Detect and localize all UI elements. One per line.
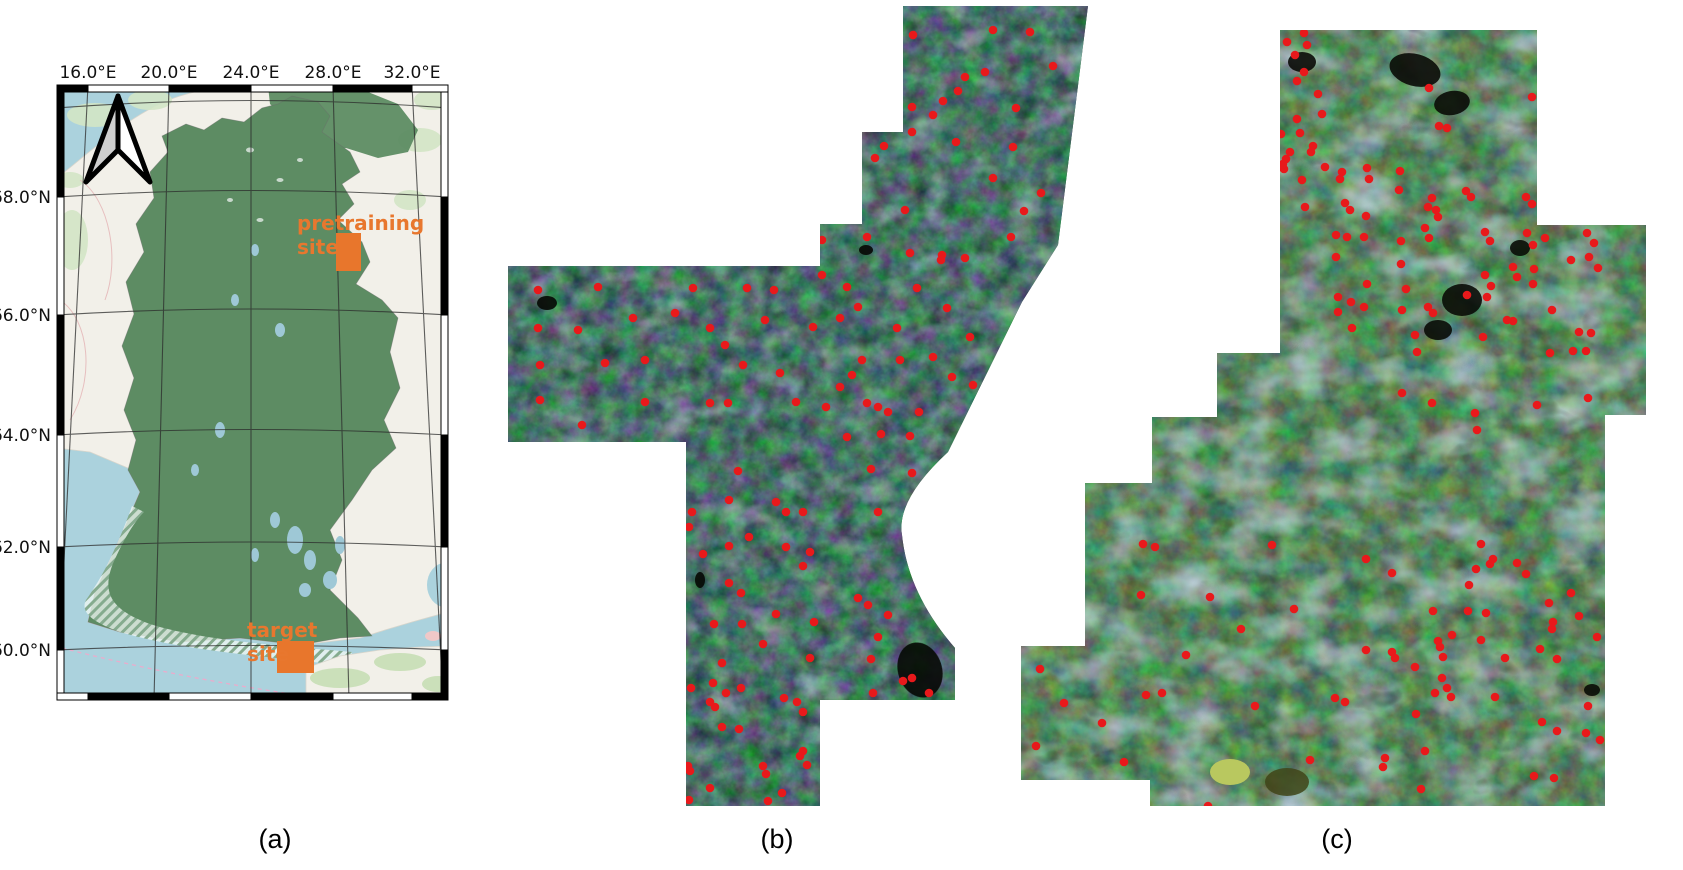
sample-point bbox=[1487, 282, 1496, 291]
sample-point bbox=[867, 465, 876, 474]
sample-point bbox=[1513, 273, 1522, 282]
sample-point bbox=[1596, 736, 1605, 745]
sample-point bbox=[1268, 541, 1277, 550]
sample-point bbox=[1300, 68, 1309, 77]
sample-point bbox=[1421, 747, 1430, 756]
sample-point bbox=[1411, 331, 1420, 340]
sample-point bbox=[966, 333, 975, 342]
sample-point bbox=[1396, 167, 1405, 176]
sample-point bbox=[1395, 186, 1404, 195]
sample-point bbox=[778, 789, 787, 798]
sample-point bbox=[759, 762, 768, 771]
pretraining-site-label-line2: site bbox=[297, 235, 339, 259]
sample-point bbox=[1491, 693, 1500, 702]
sample-point bbox=[1338, 168, 1347, 177]
sample-point bbox=[1120, 758, 1129, 767]
sample-point bbox=[908, 128, 917, 137]
sample-point bbox=[718, 723, 727, 732]
sample-point bbox=[1523, 229, 1532, 238]
latitude-axis: 68.0°N 66.0°N 64.0°N 62.0°N 60.0°N bbox=[0, 188, 51, 661]
sample-point bbox=[899, 677, 908, 686]
sample-point bbox=[848, 371, 857, 380]
sample-point bbox=[818, 271, 827, 280]
sample-point bbox=[969, 381, 978, 390]
sample-point bbox=[1365, 175, 1374, 184]
city-area bbox=[425, 631, 441, 641]
lat-tick-label: 68.0°N bbox=[0, 188, 51, 208]
sample-point bbox=[1553, 655, 1562, 664]
lat-tick-label: 62.0°N bbox=[0, 538, 51, 558]
sample-point bbox=[739, 361, 748, 370]
sample-point bbox=[954, 87, 963, 96]
sample-point bbox=[1464, 607, 1473, 616]
sample-point bbox=[1481, 271, 1490, 280]
sample-point bbox=[908, 674, 917, 683]
sample-point bbox=[1293, 77, 1302, 86]
sample-point bbox=[1331, 694, 1340, 703]
sample-point bbox=[594, 283, 603, 292]
sample-point bbox=[961, 254, 970, 263]
sample-point bbox=[806, 548, 815, 557]
sample-point bbox=[721, 341, 730, 350]
sample-point bbox=[770, 286, 779, 295]
sample-point bbox=[1036, 665, 1045, 674]
sample-point bbox=[534, 286, 543, 295]
sample-point bbox=[1447, 693, 1456, 702]
sample-point bbox=[1291, 51, 1300, 60]
sample-point bbox=[1583, 229, 1592, 238]
sample-point bbox=[1379, 763, 1388, 772]
sample-point bbox=[641, 356, 650, 365]
sample-point bbox=[724, 399, 733, 408]
sample-point bbox=[843, 433, 852, 442]
sample-point bbox=[629, 314, 638, 323]
olive-lake bbox=[1265, 768, 1309, 796]
sample-point bbox=[1362, 555, 1371, 564]
sample-point bbox=[1549, 618, 1558, 627]
sample-point bbox=[874, 403, 883, 412]
sample-point bbox=[709, 679, 718, 688]
sample-point bbox=[1584, 394, 1593, 403]
sample-point bbox=[863, 233, 872, 242]
sample-point bbox=[699, 550, 708, 559]
sample-point bbox=[1139, 540, 1148, 549]
sample-point bbox=[1348, 324, 1357, 333]
sample-point bbox=[810, 618, 819, 627]
sample-point bbox=[1436, 643, 1445, 652]
sample-point bbox=[737, 684, 746, 693]
sample-point bbox=[948, 373, 957, 382]
sample-point bbox=[1391, 654, 1400, 663]
sample-point bbox=[1483, 293, 1492, 302]
sample-point bbox=[1472, 565, 1481, 574]
sample-point bbox=[1443, 684, 1452, 693]
sample-point bbox=[725, 542, 734, 551]
sample-point bbox=[937, 256, 946, 265]
sample-point bbox=[867, 655, 876, 664]
sample-point bbox=[536, 396, 545, 405]
sample-point bbox=[722, 689, 731, 698]
sample-point bbox=[1594, 264, 1603, 273]
sample-point bbox=[1182, 651, 1191, 660]
sample-point bbox=[1334, 308, 1343, 317]
sample-point bbox=[1477, 540, 1486, 549]
sample-point bbox=[1301, 203, 1310, 212]
sample-point bbox=[1536, 645, 1545, 654]
sample-point bbox=[761, 316, 770, 325]
sample-point bbox=[1421, 224, 1430, 233]
sample-point bbox=[687, 684, 696, 693]
sample-point bbox=[929, 353, 938, 362]
sample-point bbox=[685, 796, 694, 805]
sample-point bbox=[1529, 241, 1538, 250]
sample-point bbox=[735, 725, 744, 734]
sample-point bbox=[1049, 62, 1058, 71]
map-content: pretraining site target site bbox=[56, 85, 463, 700]
sample-point bbox=[1290, 605, 1299, 614]
sample-point bbox=[915, 408, 924, 417]
sample-point bbox=[1567, 589, 1576, 598]
sample-point bbox=[1300, 29, 1309, 38]
sample-point bbox=[1528, 200, 1537, 209]
sample-point bbox=[1545, 599, 1554, 608]
sample-point bbox=[858, 356, 867, 365]
sample-point bbox=[578, 421, 587, 430]
sample-point bbox=[1429, 607, 1438, 616]
sample-point bbox=[1546, 349, 1555, 358]
sample-point bbox=[803, 761, 812, 770]
lon-tick-label: 24.0°E bbox=[222, 63, 279, 83]
sample-point bbox=[854, 594, 863, 603]
sample-point bbox=[1398, 306, 1407, 315]
sample-point bbox=[686, 767, 695, 776]
sample-point bbox=[772, 498, 781, 507]
sample-point bbox=[782, 543, 791, 552]
sample-point bbox=[1417, 785, 1426, 794]
sample-point bbox=[1575, 328, 1584, 337]
sample-point bbox=[706, 399, 715, 408]
sample-point bbox=[806, 654, 815, 663]
sample-point bbox=[1142, 691, 1151, 700]
sample-point bbox=[896, 356, 905, 365]
sample-point bbox=[780, 694, 789, 703]
sample-point bbox=[1411, 663, 1420, 672]
sample-point bbox=[822, 403, 831, 412]
sample-point bbox=[1425, 84, 1434, 93]
sample-point bbox=[1465, 581, 1474, 590]
sample-point bbox=[1309, 142, 1318, 151]
sample-point bbox=[1486, 560, 1495, 569]
sample-point bbox=[1428, 399, 1437, 408]
sample-point bbox=[1321, 163, 1330, 172]
sample-point bbox=[1360, 233, 1369, 242]
sample-point bbox=[1381, 754, 1390, 763]
sample-point bbox=[1306, 756, 1315, 765]
sample-point bbox=[1473, 426, 1482, 435]
sample-point bbox=[1397, 237, 1406, 246]
sample-point bbox=[1346, 206, 1355, 215]
sample-point bbox=[989, 174, 998, 183]
sample-point bbox=[1479, 333, 1488, 342]
sample-point bbox=[1550, 774, 1559, 783]
sample-point bbox=[1402, 285, 1411, 294]
sample-point bbox=[1448, 631, 1457, 640]
sample-point bbox=[799, 708, 808, 717]
sample-point bbox=[1584, 702, 1593, 711]
sample-point bbox=[1412, 710, 1421, 719]
lat-tick-label: 66.0°N bbox=[0, 306, 51, 326]
sample-point bbox=[908, 103, 917, 112]
sample-point bbox=[1424, 203, 1433, 212]
lat-tick-label: 60.0°N bbox=[0, 641, 51, 661]
sample-point bbox=[793, 698, 802, 707]
sample-point bbox=[1439, 653, 1448, 662]
sample-point bbox=[1363, 280, 1372, 289]
sample-point bbox=[1428, 194, 1437, 203]
sample-point bbox=[743, 284, 752, 293]
sample-point bbox=[1347, 298, 1356, 307]
sample-point bbox=[1397, 260, 1406, 269]
sample-point bbox=[1509, 263, 1518, 272]
sample-point bbox=[1279, 160, 1288, 169]
sample-point bbox=[1486, 237, 1495, 246]
sample-point bbox=[764, 797, 773, 806]
sample-point bbox=[1277, 130, 1286, 139]
sample-point bbox=[688, 508, 697, 517]
pretraining-site-rect bbox=[336, 233, 361, 271]
sample-point bbox=[884, 611, 893, 620]
sample-point bbox=[1513, 559, 1522, 568]
sample-point bbox=[725, 579, 734, 588]
sample-point bbox=[925, 689, 934, 698]
sample-point bbox=[792, 398, 801, 407]
sample-point bbox=[1593, 633, 1602, 642]
sample-point bbox=[799, 562, 808, 571]
sample-point bbox=[1032, 742, 1041, 751]
study-area-figure: pretraining site target site bbox=[0, 0, 1683, 870]
sample-point bbox=[1251, 702, 1260, 711]
sample-point bbox=[1431, 689, 1440, 698]
sample-point bbox=[880, 142, 889, 151]
sample-point bbox=[1463, 291, 1472, 300]
sample-point bbox=[1538, 718, 1547, 727]
lon-tick-label: 20.0°E bbox=[140, 63, 197, 83]
sample-point bbox=[536, 361, 545, 370]
sample-point bbox=[782, 508, 791, 517]
sample-point bbox=[1528, 93, 1537, 102]
caption-b: (b) bbox=[761, 824, 794, 855]
sample-point bbox=[1590, 239, 1599, 248]
sample-point bbox=[796, 752, 805, 761]
sample-point bbox=[734, 467, 743, 476]
sample-point bbox=[574, 326, 583, 335]
sample-point bbox=[1158, 689, 1167, 698]
sample-point bbox=[874, 633, 883, 642]
sample-point bbox=[534, 324, 543, 333]
sample-point bbox=[1438, 674, 1447, 683]
sample-point bbox=[1362, 212, 1371, 221]
panel-c-satellite-mosaic bbox=[1015, 25, 1655, 815]
sample-point bbox=[745, 533, 754, 542]
sample-point bbox=[893, 324, 902, 333]
sample-point bbox=[671, 309, 680, 318]
lon-tick-label: 28.0°E bbox=[304, 63, 361, 83]
panel-b-satellite-mosaic bbox=[470, 0, 1110, 815]
sample-point bbox=[1533, 401, 1542, 410]
sample-point bbox=[1429, 309, 1438, 318]
sample-point bbox=[1585, 253, 1594, 262]
sample-point bbox=[1582, 729, 1591, 738]
figure-canvas: pretraining site target site bbox=[0, 0, 1683, 870]
sample-point bbox=[1137, 591, 1146, 600]
sample-point bbox=[1341, 199, 1350, 208]
sample-point bbox=[884, 408, 893, 417]
sample-point bbox=[864, 601, 873, 610]
sample-point bbox=[1425, 234, 1434, 243]
sample-point bbox=[718, 659, 727, 668]
sample-point bbox=[1026, 28, 1035, 37]
lon-tick-label: 32.0°E bbox=[383, 63, 440, 83]
sample-point bbox=[1343, 233, 1352, 242]
sample-point bbox=[1477, 636, 1486, 645]
sample-point bbox=[906, 249, 915, 258]
sample-point bbox=[877, 430, 886, 439]
sample-point bbox=[863, 399, 872, 408]
sample-point bbox=[1151, 543, 1160, 552]
sample-point bbox=[1398, 389, 1407, 398]
pale-green-lake bbox=[1210, 759, 1250, 785]
sample-point bbox=[1007, 233, 1016, 242]
sample-point bbox=[1360, 303, 1369, 312]
sample-point bbox=[1098, 719, 1107, 728]
sample-point bbox=[1318, 110, 1327, 119]
lon-tick-label: 16.0°E bbox=[59, 63, 116, 83]
sample-point bbox=[1341, 698, 1350, 707]
sample-point bbox=[1037, 189, 1046, 198]
sample-point bbox=[1569, 347, 1578, 356]
sample-point bbox=[1206, 593, 1215, 602]
sample-point bbox=[908, 469, 917, 478]
sample-point bbox=[818, 236, 827, 245]
longitude-axis: 16.0°E 20.0°E 24.0°E 28.0°E 32.0°E bbox=[59, 63, 440, 83]
sample-point bbox=[1567, 256, 1576, 265]
sample-point bbox=[1298, 176, 1307, 185]
sample-point bbox=[706, 324, 715, 333]
sample-point bbox=[1204, 802, 1213, 811]
sample-point bbox=[939, 97, 948, 106]
sample-point bbox=[710, 620, 719, 629]
sample-point bbox=[1575, 612, 1584, 621]
sample-point bbox=[1363, 164, 1372, 173]
sample-point bbox=[762, 770, 771, 779]
sample-point bbox=[706, 784, 715, 793]
sample-point bbox=[809, 323, 818, 332]
sample-point bbox=[1362, 646, 1371, 655]
sample-point bbox=[737, 589, 746, 598]
sample-point bbox=[1009, 143, 1018, 152]
sample-point bbox=[1060, 699, 1069, 708]
sample-point bbox=[961, 73, 970, 82]
sample-point bbox=[1548, 306, 1557, 315]
sample-point bbox=[1529, 280, 1538, 289]
pretraining-site-label-line1: pretraining bbox=[297, 211, 424, 235]
sample-point bbox=[689, 284, 698, 293]
sample-point bbox=[1482, 609, 1491, 618]
sample-point bbox=[943, 304, 952, 313]
target-site-label-line2: site bbox=[247, 642, 289, 666]
sample-point bbox=[1332, 231, 1341, 240]
sample-point bbox=[1432, 206, 1441, 215]
sample-point bbox=[871, 154, 880, 163]
sample-point bbox=[1541, 234, 1550, 243]
sample-point bbox=[685, 523, 694, 532]
sample-point bbox=[854, 303, 863, 312]
sample-point bbox=[776, 369, 785, 378]
sample-point bbox=[1481, 228, 1490, 237]
sample-point bbox=[1413, 348, 1422, 357]
sample-point bbox=[929, 111, 938, 120]
sample-point bbox=[1435, 122, 1444, 131]
sample-point bbox=[1303, 41, 1312, 50]
sample-point bbox=[725, 496, 734, 505]
sample-point bbox=[952, 138, 961, 147]
sample-point bbox=[1530, 772, 1539, 781]
sample-point bbox=[1293, 115, 1302, 124]
sample-point bbox=[1503, 316, 1512, 325]
sample-point bbox=[1314, 90, 1323, 99]
sample-point bbox=[901, 206, 910, 215]
sample-point bbox=[1334, 293, 1343, 302]
sample-point bbox=[1530, 265, 1539, 274]
caption-a: (a) bbox=[259, 824, 292, 855]
sample-point bbox=[989, 26, 998, 35]
sample-point bbox=[1522, 193, 1531, 202]
caption-c: (c) bbox=[1321, 824, 1352, 855]
sample-point bbox=[843, 283, 852, 292]
sample-point bbox=[909, 31, 918, 40]
sample-point bbox=[1471, 409, 1480, 418]
sample-point bbox=[1462, 187, 1471, 196]
sample-point bbox=[772, 610, 781, 619]
sample-point bbox=[1020, 207, 1029, 216]
sample-point bbox=[1553, 727, 1562, 736]
sample-point bbox=[874, 508, 883, 517]
sample-point bbox=[1296, 129, 1305, 138]
sample-point bbox=[1012, 104, 1021, 113]
lat-tick-label: 64.0°N bbox=[0, 426, 51, 446]
sample-point bbox=[1501, 654, 1510, 663]
sample-point bbox=[641, 398, 650, 407]
sample-point bbox=[1332, 253, 1341, 262]
sample-point bbox=[906, 432, 915, 441]
sample-point bbox=[1522, 570, 1531, 579]
sample-point bbox=[836, 314, 845, 323]
sample-point bbox=[981, 68, 990, 77]
sample-point bbox=[869, 689, 878, 698]
sample-point bbox=[601, 359, 610, 368]
sample-point bbox=[1388, 569, 1397, 578]
sample-point bbox=[738, 620, 747, 629]
target-site-label-line1: target bbox=[247, 618, 318, 642]
sample-point bbox=[836, 383, 845, 392]
sample-point bbox=[1283, 38, 1292, 47]
panel-a-overview-map: pretraining site target site bbox=[0, 63, 463, 700]
sample-point bbox=[759, 640, 768, 649]
sample-point bbox=[1587, 329, 1596, 338]
sample-point bbox=[1443, 124, 1452, 133]
sample-point bbox=[1582, 347, 1591, 356]
sample-point bbox=[706, 698, 715, 707]
